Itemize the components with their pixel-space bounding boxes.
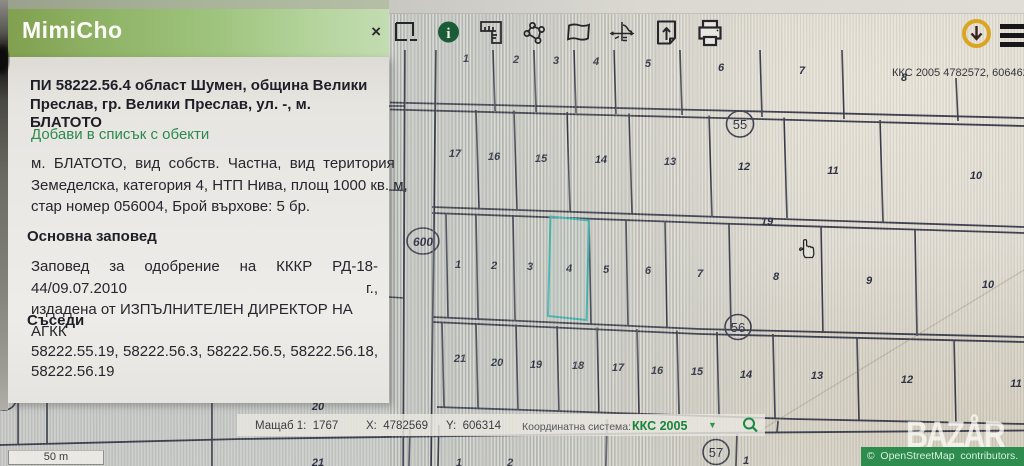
svg-text:i: i [446,26,450,42]
